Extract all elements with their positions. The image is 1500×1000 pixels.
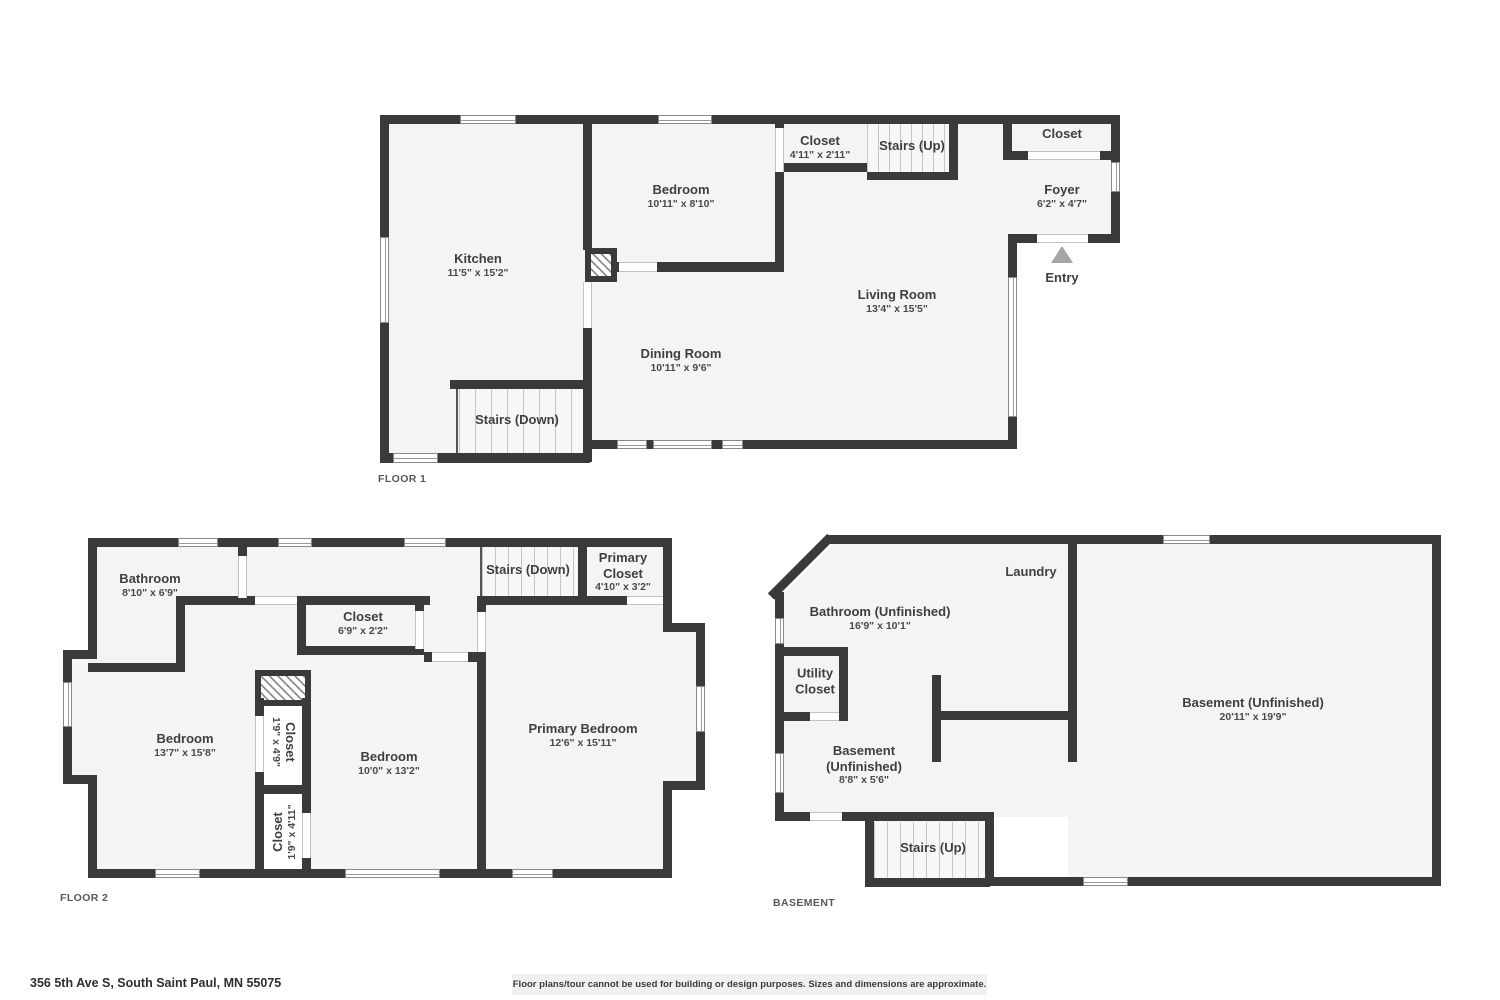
window [1163, 535, 1210, 544]
chimney-hatch [585, 248, 617, 282]
window [393, 453, 438, 463]
room-label-primary-bedroom: Primary Bedroom12'6" x 15'11" [528, 721, 637, 749]
wall [1432, 535, 1441, 886]
window [775, 618, 784, 644]
entry-door-opening [1037, 234, 1088, 243]
door-opening [810, 712, 839, 721]
wall [663, 538, 672, 632]
room-label-living: Living Room13'4" x 15'5" [858, 287, 937, 315]
room-label-bedroom-left: Bedroom13'7" x 15'8" [154, 731, 216, 759]
room-label-stairs-up: Stairs (Up) [900, 840, 966, 856]
room-label-laundry: Laundry [1005, 564, 1056, 580]
wall [937, 711, 1077, 720]
window [1083, 877, 1128, 886]
wall [865, 878, 990, 887]
window [380, 237, 389, 323]
disclaimer-text: Floor plans/tour cannot be used for buil… [512, 974, 987, 995]
room-label-bathroom-unfinished: Bathroom (Unfinished)16'9" x 10'1" [810, 604, 951, 632]
window [653, 440, 712, 449]
window [696, 686, 705, 732]
room-label-foyer: Foyer6'2" x 4'7" [1037, 182, 1087, 210]
room-label-kitchen: Kitchen11'5" x 15'2" [447, 251, 508, 279]
wall [88, 538, 97, 659]
room-label-closet-upper: Closet1'9" x 4'9" [270, 717, 298, 767]
property-address: 356 5th Ave S, South Saint Paul, MN 5507… [30, 976, 281, 990]
room-label-stairs-down: Stairs (Down) [486, 562, 570, 578]
wall [583, 124, 592, 250]
wall [826, 535, 1441, 544]
room-label-bedroom: Bedroom10'11" x 8'10" [648, 182, 715, 210]
door-opening [255, 596, 297, 605]
floorplan-page: Kitchen11'5" x 15'2" Bedroom10'11" x 8'1… [0, 0, 1500, 1000]
door-opening [302, 813, 311, 858]
floor2-title: FLOOR 2 [60, 892, 108, 904]
wall [450, 380, 590, 389]
stairs-edge-line [456, 389, 458, 453]
wall [867, 172, 958, 180]
room-label-stairs-down: Stairs (Down) [475, 412, 559, 428]
wall [985, 812, 994, 886]
wall [88, 538, 672, 547]
wall [1068, 544, 1077, 762]
window [1111, 162, 1120, 192]
door-opening [238, 556, 247, 598]
room-label-bedroom-middle: Bedroom10'0" x 13'2" [358, 749, 420, 777]
wall [88, 775, 97, 878]
wall [949, 115, 958, 180]
door-opening [255, 716, 264, 772]
room-label-basement-small: Basement (Unfinished)8'8" x 5'6" [809, 743, 919, 787]
room-label-utility-closet: Utility Closet [788, 665, 842, 696]
angled-corner-mask [779, 540, 837, 598]
window [512, 869, 553, 878]
window [722, 440, 743, 449]
entry-arrow-icon [1051, 246, 1073, 263]
wall [255, 785, 311, 794]
door-opening [1028, 151, 1100, 160]
window [345, 869, 440, 878]
wall [985, 877, 1441, 886]
door-opening [627, 596, 663, 605]
wall [775, 163, 867, 172]
wall [932, 675, 941, 762]
wall [663, 781, 672, 878]
door-opening [619, 262, 657, 272]
door-opening [775, 128, 784, 172]
door-opening [583, 282, 592, 328]
window [278, 538, 312, 547]
window [658, 115, 712, 124]
window [1008, 277, 1017, 417]
room-label-dining: Dining Room10'11" x 9'6" [641, 346, 722, 374]
basement-title: BASEMENT [773, 897, 835, 909]
door-opening [810, 812, 842, 821]
wall [477, 596, 588, 605]
floor1-title: FLOOR 1 [378, 473, 426, 485]
wall [176, 596, 185, 672]
room-label-entry-closet: Closet [1042, 126, 1082, 142]
room-label-closet-lower: Closet1'9" x 4'11" [270, 804, 298, 859]
window [178, 538, 218, 547]
window [775, 753, 784, 793]
window [63, 682, 72, 727]
room-label-stairs-up: Stairs (Up) [879, 138, 945, 154]
room-label-hall-closet: Closet6'9" x 2'2" [338, 609, 388, 637]
door-opening [432, 652, 468, 662]
room-label-entry: Entry [1045, 270, 1078, 286]
window [155, 869, 200, 878]
floor-area [68, 655, 98, 780]
room-label-closet: Closet4'11" x 2'11" [790, 133, 851, 161]
wall [176, 596, 247, 605]
room-label-basement-large: Basement (Unfinished)20'11" x 19'9" [1182, 695, 1324, 723]
room-label-primary-closet: Primary Closet4'10" x 3'2" [585, 550, 661, 594]
stairs-edge-line [480, 547, 482, 596]
wall [297, 596, 430, 605]
wall [865, 812, 874, 887]
window [460, 115, 516, 124]
wall [583, 440, 1017, 449]
door-opening [477, 612, 486, 652]
wall [297, 646, 424, 655]
window [617, 440, 647, 449]
room-label-bathroom: Bathroom8'10" x 6'9" [119, 571, 180, 599]
wall [779, 647, 848, 656]
window [404, 538, 446, 547]
wall [88, 663, 185, 672]
wall [775, 812, 990, 821]
door-opening [415, 611, 424, 649]
